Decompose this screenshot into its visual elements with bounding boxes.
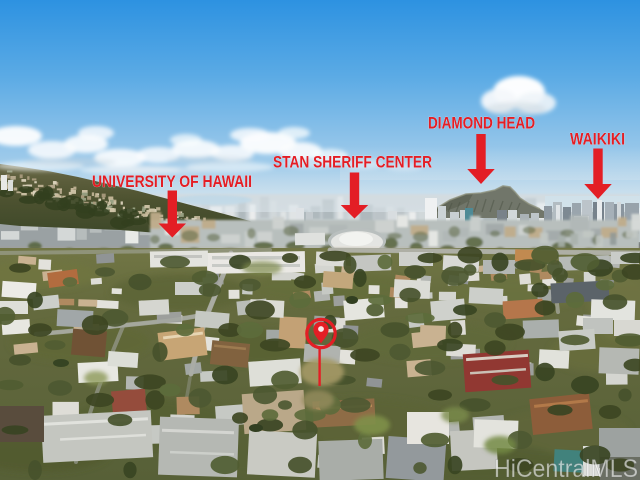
svg-text:STAN SHERIFF CENTER: STAN SHERIFF CENTER bbox=[273, 154, 432, 172]
svg-text:WAIKIKI: WAIKIKI bbox=[570, 131, 625, 149]
svg-text:HiCentralMLS: HiCentralMLS bbox=[494, 455, 638, 480]
svg-text:UNIVERSITY OF HAWAII: UNIVERSITY OF HAWAII bbox=[92, 173, 252, 191]
svg-text:DIAMOND HEAD: DIAMOND HEAD bbox=[428, 115, 535, 133]
